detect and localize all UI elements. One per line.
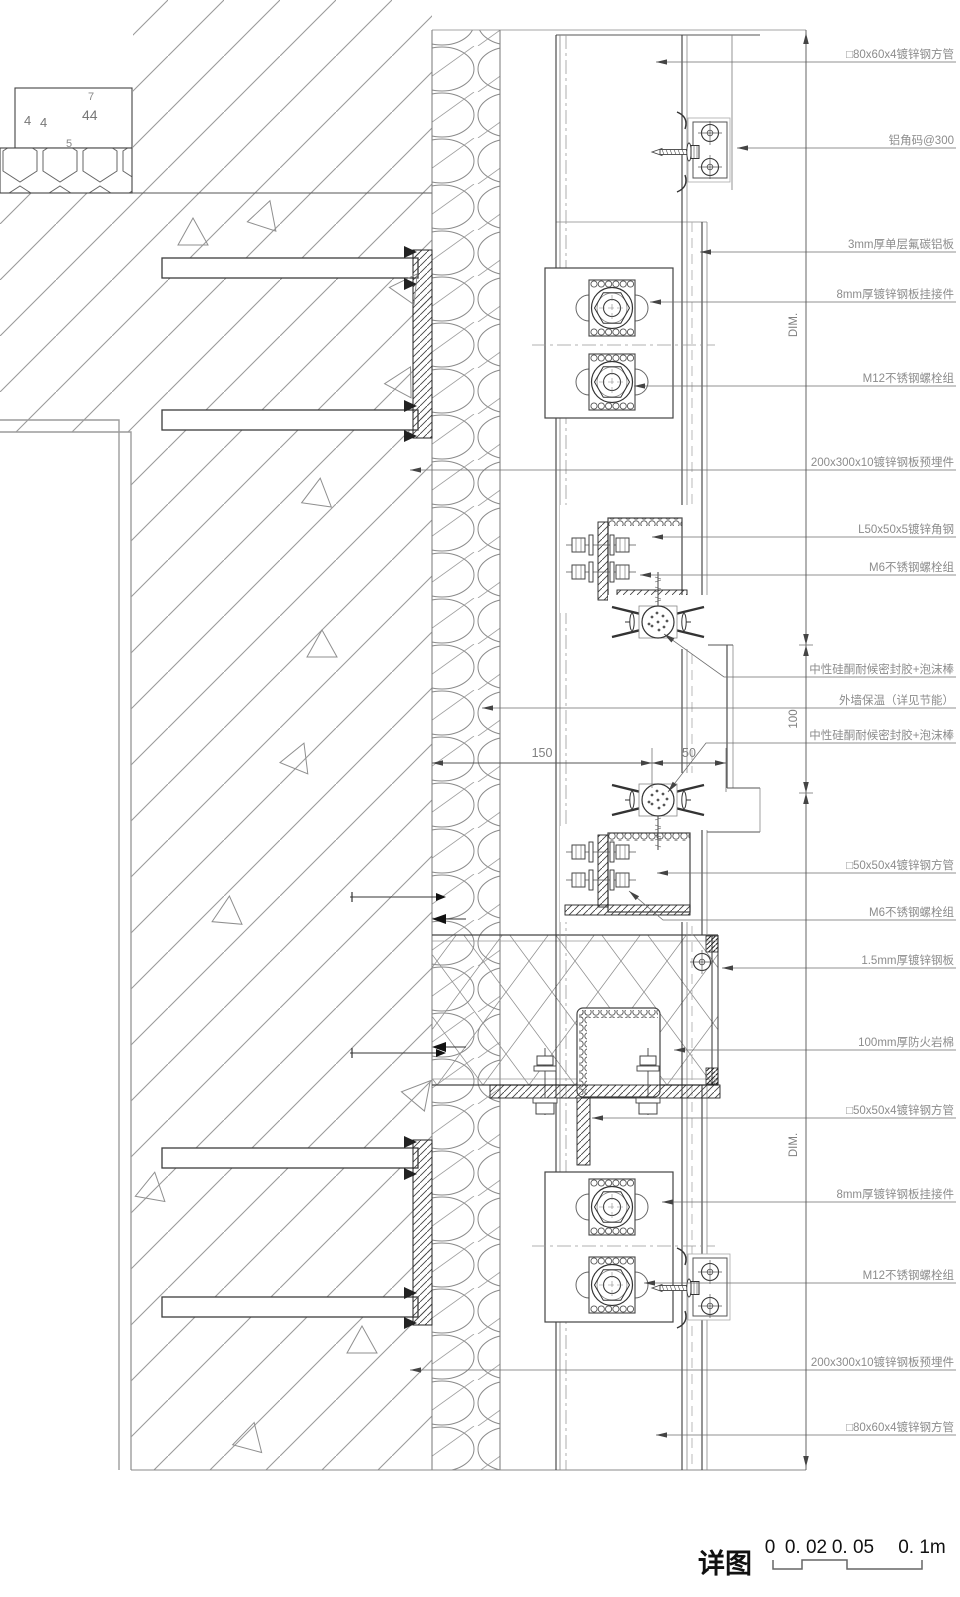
callout-label: M6不锈钢螺栓组 [869,905,954,919]
concrete-wall [0,0,432,1470]
steel-tube-section [608,518,682,600]
callout-label: M6不锈钢螺栓组 [869,560,954,574]
callout-label: 8mm厚镀锌钢板挂接件 [836,1187,954,1201]
callout-label: □50x50x4镀锌钢方管 [846,1103,954,1117]
angle-vertical-leg [598,522,608,600]
callout-9: 外墙保温（详见节能） [482,693,956,711]
callout-label: 中性硅酮耐候密封胶+泡沫棒 [809,662,954,676]
embedded-steel-plate [413,250,432,438]
drawing-title: 详图 [698,1548,752,1579]
dim-label: 150 [532,746,553,760]
callout-3: 8mm厚镀锌钢板挂接件 [650,287,956,305]
scale-label: 0. 02 [785,1537,827,1558]
self-drilling-screw [652,143,699,161]
scale-label: 0 [765,1537,776,1558]
callout-label: 1.5mm厚镀锌钢板 [861,953,954,967]
callout-10: 中性硅酮耐候密封胶+泡沫棒 [668,728,956,792]
callout-16: 8mm厚镀锌钢板挂接件 [662,1187,956,1205]
callout-1: 铝角码@300 [737,133,956,151]
dim-label: 50 [682,746,696,760]
plaster-mark: 7 [88,91,94,103]
wall-hatch-area [0,0,432,1470]
plaster-mark: 4 [24,113,31,128]
callout-label: M12不锈钢螺栓组 [863,371,955,385]
hex-tile-band [0,148,132,193]
callout-label: 200x300x10镀锌钢板预埋件 [811,455,954,469]
fire-barrier-band [432,935,718,1085]
callout-label: 100mm厚防火岩棉 [858,1035,954,1049]
plaster-band: 4 4 44 7 5 [15,88,132,150]
callout-label: 3mm厚单层氟碳铝板 [848,237,955,251]
anchor-bar [162,1148,418,1168]
scale-label: 0. 05 [832,1537,874,1558]
plaster-mark: 44 [82,107,98,123]
callout-2: 3mm厚单层氟碳铝板 [700,237,956,255]
scale-bar [773,1560,922,1569]
dimension-vertical: DIM.100DIM. [788,30,813,1470]
callout-label: 200x300x10镀锌钢板预埋件 [811,1355,954,1369]
callout-13: 1.5mm厚镀锌钢板 [722,953,956,971]
embedded-steel-plate [413,1140,432,1325]
callout-label: 外墙保温（详见节能） [839,693,954,707]
title-block: 详图 0 0. 02 0. 05 0. 1m [698,1537,946,1579]
callout-label: 中性硅酮耐候密封胶+泡沫棒 [809,728,954,742]
callout-label: □80x60x4镀锌钢方管 [846,47,954,61]
callout-label: □80x60x4镀锌钢方管 [846,1420,954,1434]
plaster-mark: 4 [40,115,47,130]
callout-label: 铝角码@300 [889,133,954,147]
angle-vertical-leg [577,1098,590,1165]
dim-label: DIM. [788,1133,800,1157]
support-plate [490,1085,720,1098]
dim-label: 100 [788,709,800,728]
callout-label: □50x50x4镀锌钢方管 [846,858,954,872]
anchor-bar [162,1297,418,1317]
dim-label: DIM. [788,313,800,337]
anchor-bar [162,410,418,430]
callout-label: M12不锈钢螺栓组 [863,1268,955,1282]
insulation-layer [432,30,500,1470]
callout-label: L50x50x5镀锌角钢 [858,522,954,536]
fixing-clip [706,1068,718,1084]
fixing-clip [706,936,718,952]
wall-corner-edge [0,420,119,1470]
scale-label: 0. 1m [898,1537,946,1558]
anchor-bar [162,258,418,278]
detail-drawing: 4 4 44 7 5 [0,0,960,1597]
callout-label: 8mm厚镀锌钢板挂接件 [836,287,954,301]
